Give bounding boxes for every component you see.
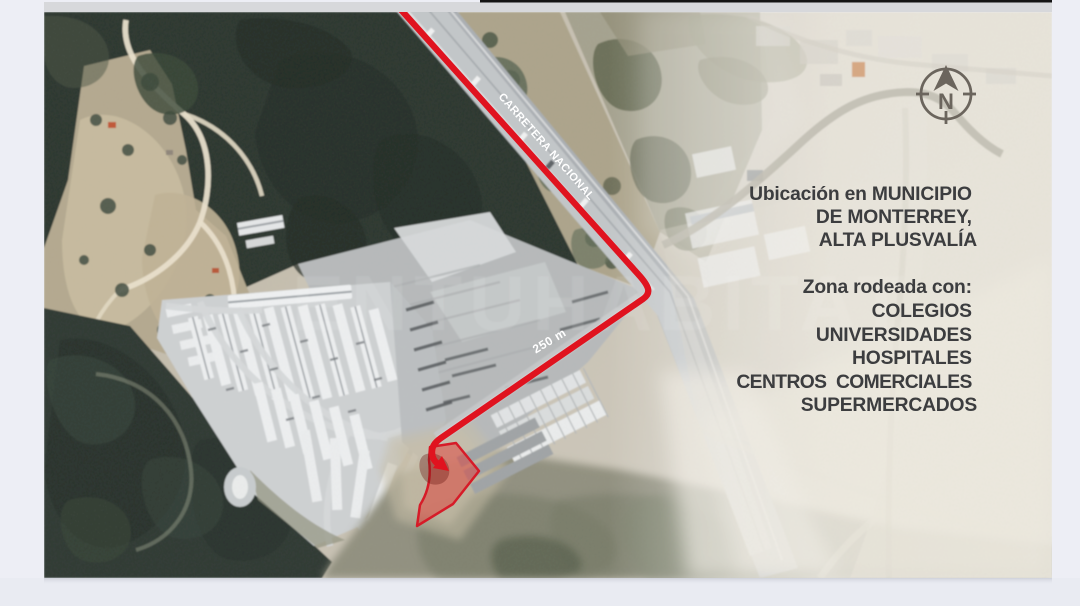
svg-text:N: N [938, 89, 954, 114]
